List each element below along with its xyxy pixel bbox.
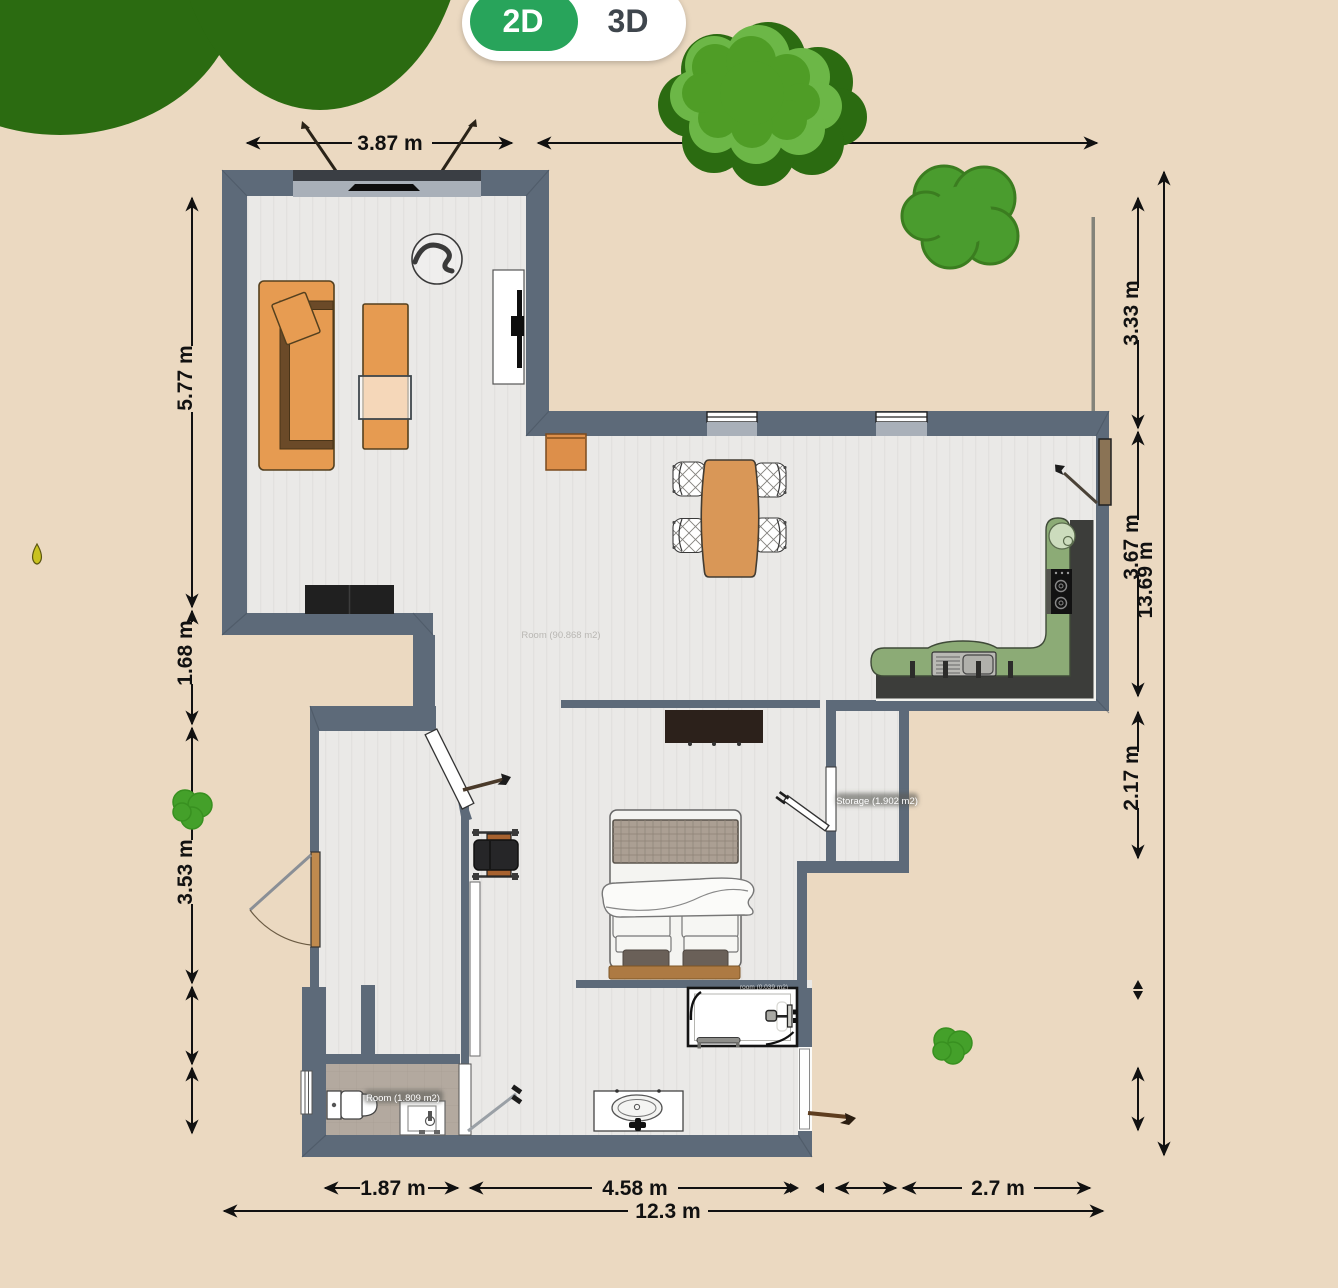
svg-text:Room (90.868 m2): Room (90.868 m2) — [521, 630, 600, 641]
svg-text:5.77 m: 5.77 m — [174, 345, 197, 410]
svg-text:3.33 m: 3.33 m — [1120, 280, 1143, 345]
svg-text:1.68 m: 1.68 m — [174, 620, 197, 685]
svg-text:3.87 m: 3.87 m — [357, 132, 422, 155]
svg-text:2D: 2D — [503, 3, 544, 39]
svg-text:4.58 m: 4.58 m — [602, 1177, 667, 1200]
svg-text:13.69 m: 13.69 m — [1134, 541, 1157, 618]
svg-text:Storage (1.902 m2): Storage (1.902 m2) — [836, 796, 918, 807]
svg-text:3D: 3D — [608, 3, 649, 39]
svg-text:3.53 m: 3.53 m — [174, 839, 197, 904]
svg-text:1.87 m: 1.87 m — [360, 1177, 425, 1200]
svg-text:2.17 m: 2.17 m — [1120, 745, 1143, 810]
svg-text:12.3 m: 12.3 m — [635, 1200, 700, 1223]
svg-text:2.7 m: 2.7 m — [971, 1177, 1025, 1200]
svg-text:room (0.039 m2): room (0.039 m2) — [740, 984, 788, 991]
svg-text:Room (1.809 m2): Room (1.809 m2) — [366, 1093, 440, 1104]
